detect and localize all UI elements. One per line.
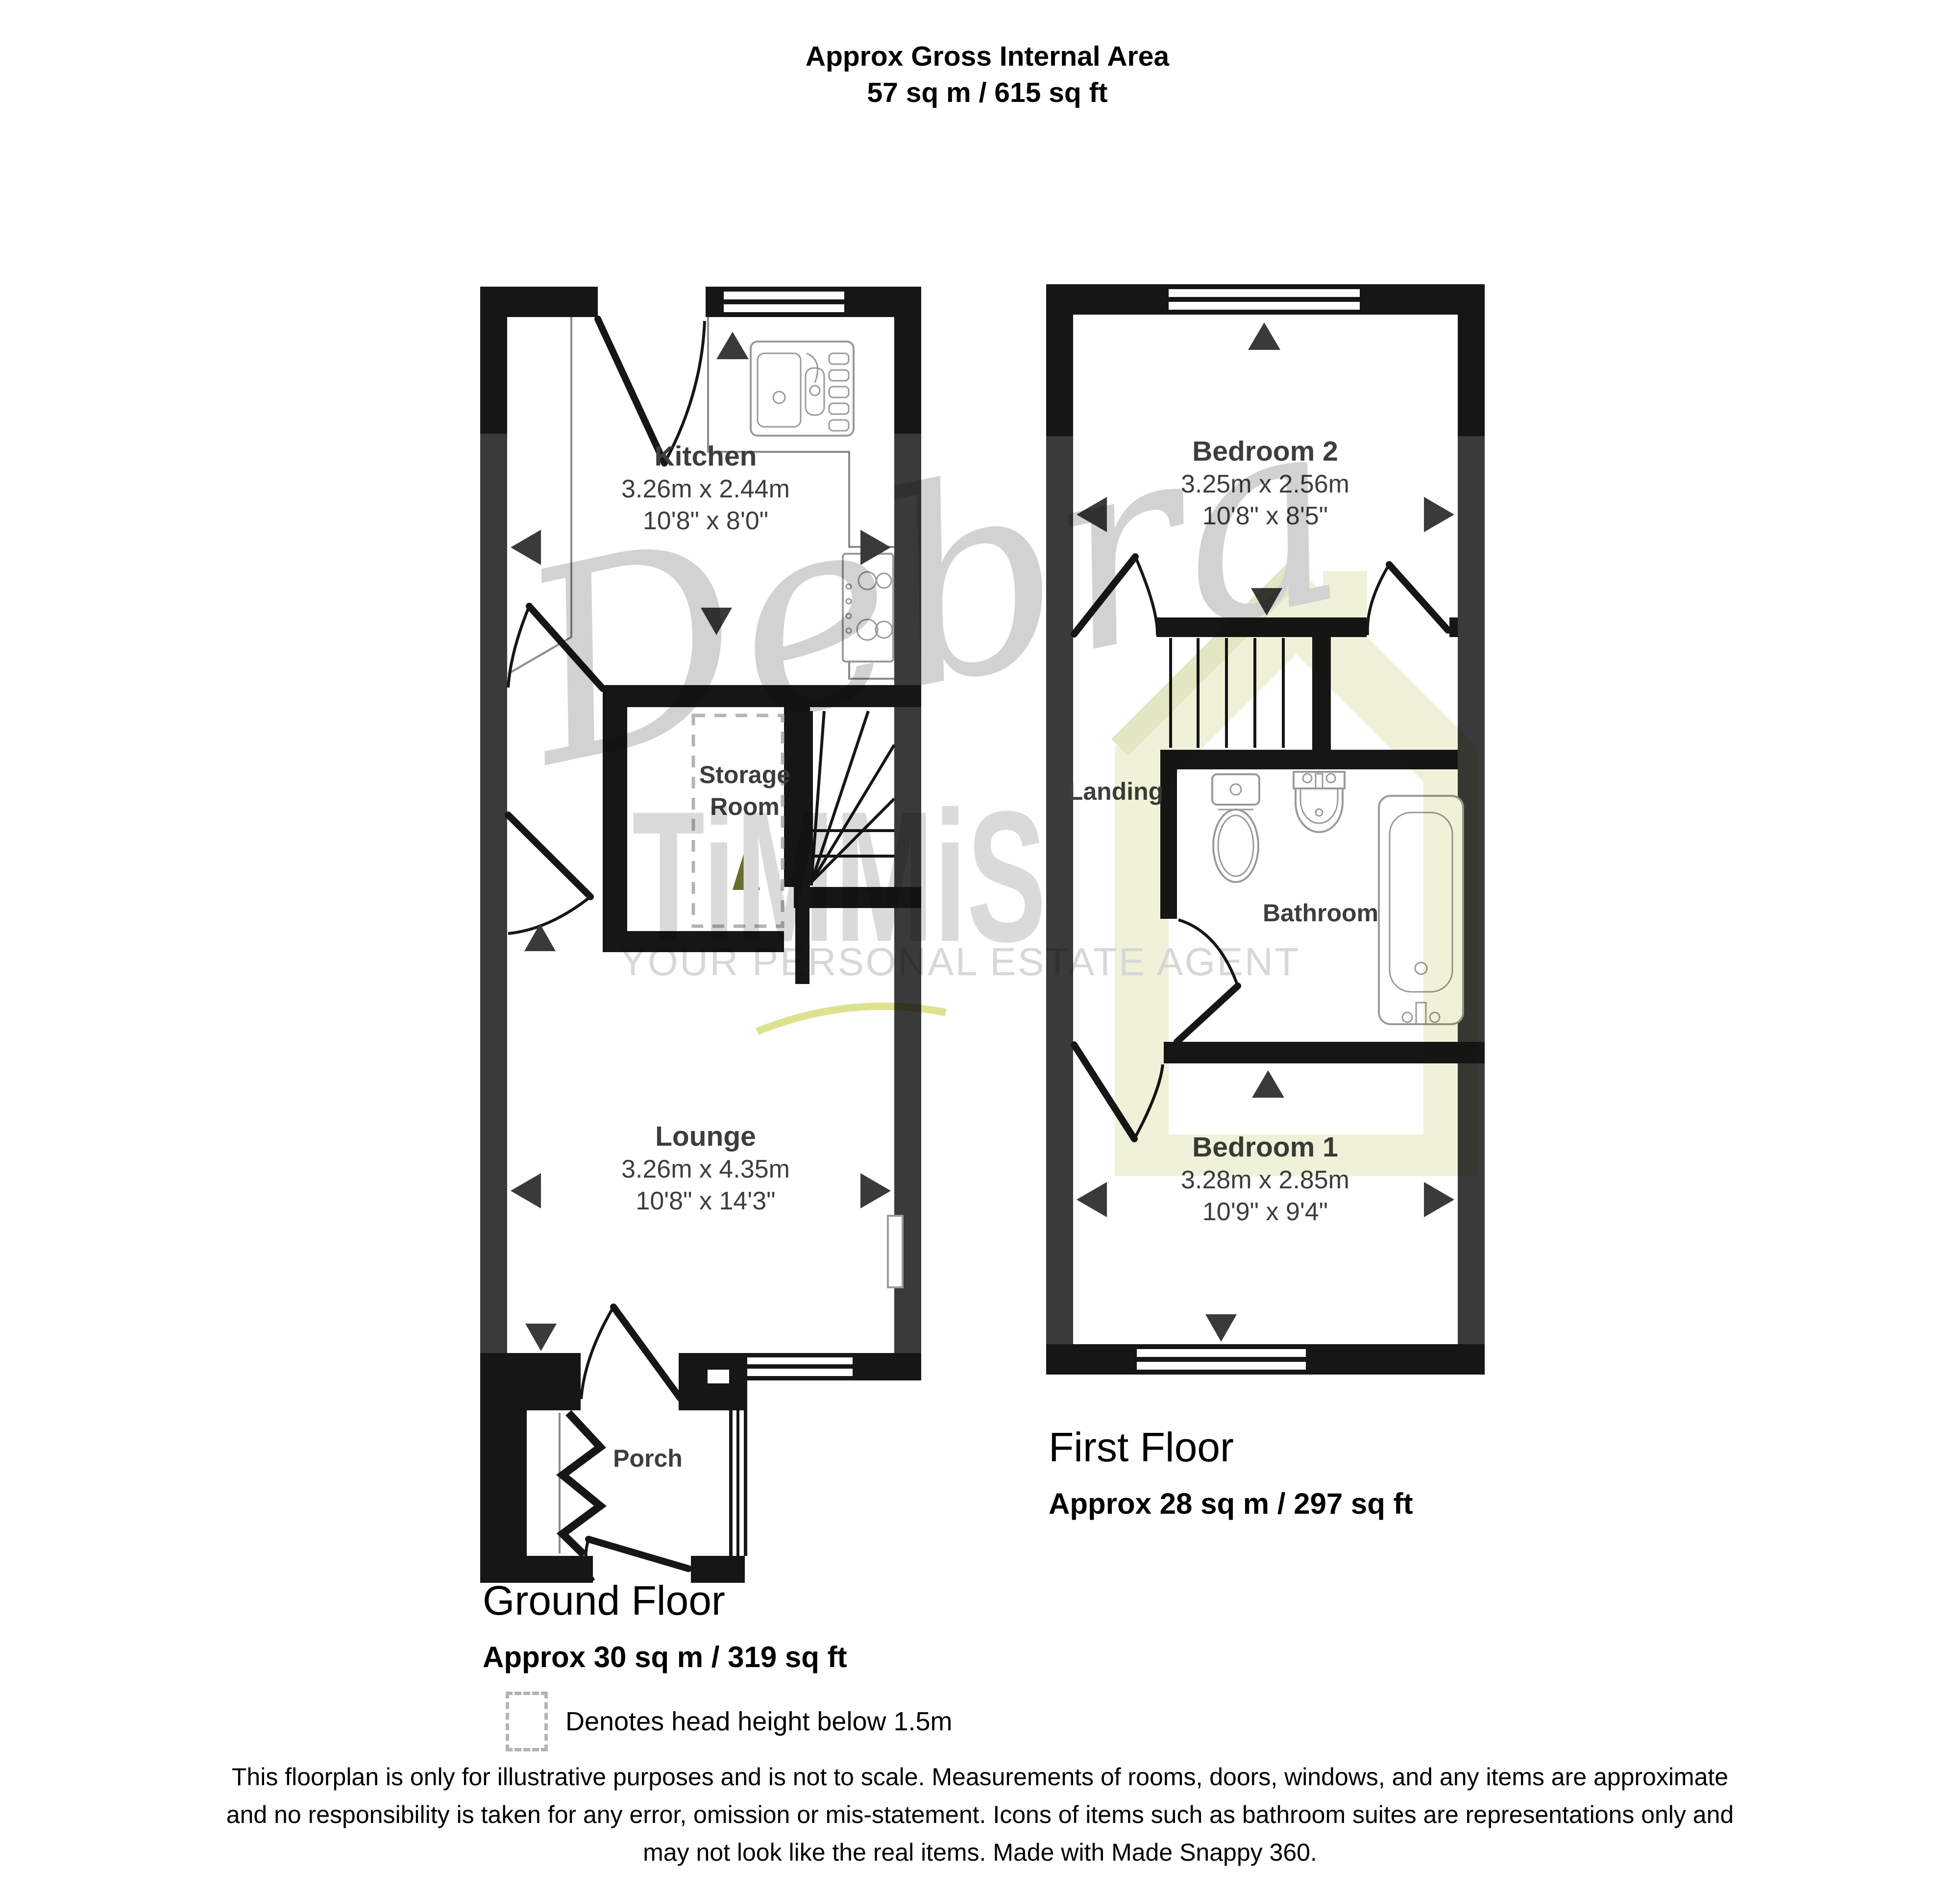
bedroom1-window: [1137, 1344, 1306, 1375]
porch-zigzag: [560, 1413, 600, 1555]
arrow-up-icon: [716, 332, 749, 359]
bathroom-door: [1177, 920, 1238, 1042]
arrow-down-icon: [1251, 588, 1282, 615]
watermark: Debra TiMMiS YOUR PERSONAL ESTATE AGENT: [0, 0, 1960, 1894]
arrow-down-icon: [525, 1324, 557, 1351]
wall: [894, 287, 921, 434]
kitchen-imperial: 10'8" x 8'0": [643, 507, 768, 535]
wall: [706, 287, 724, 317]
wall: [480, 1353, 581, 1410]
legend-text: Denotes head height below 1.5m: [565, 1706, 953, 1737]
title-line2: 57 sq m / 615 sq ft: [735, 74, 1240, 111]
bedroom2-door: [1074, 557, 1157, 635]
wall: [1046, 436, 1073, 1375]
kitchen-metric: 3.26m x 2.44m: [621, 475, 790, 503]
arrow-up-icon: [524, 924, 556, 951]
ground-floor-heading-block: Ground Floor Approx 30 sq m / 319 sq ft: [483, 1577, 847, 1674]
cupboard-door: [1368, 565, 1448, 635]
floorplan-page: Approx Gross Internal Area 57 sq m / 615…: [0, 0, 1960, 1894]
disclaimer-line2: and no responsibility is taken for any e…: [196, 1796, 1764, 1834]
storage-label-line1: Storage: [699, 761, 790, 788]
arrow-left-icon: [1077, 1182, 1107, 1217]
bathtub-icon: [1379, 796, 1463, 1024]
storage-label-line2: Room: [710, 793, 780, 820]
wall: [1160, 750, 1177, 919]
radiator-icon: [888, 1216, 903, 1287]
wall: [795, 908, 809, 984]
porch-inner-door: [581, 1307, 680, 1399]
porch-label: Porch: [613, 1445, 683, 1472]
basin-icon: [1294, 772, 1345, 832]
wall: [794, 887, 921, 908]
wall: [1046, 284, 1073, 436]
arrow-right-icon: [1424, 497, 1454, 532]
bedroom2-window: [1169, 284, 1360, 315]
arrow-left-icon: [511, 530, 541, 565]
landing-label: Landing: [1068, 778, 1163, 805]
ground-floor-plan: Kitchen 3.26m x 2.44m 10'8" x 8'0" Stora…: [480, 287, 921, 1583]
ground-floor-area: Approx 30 sq m / 319 sq ft: [483, 1640, 847, 1674]
bedroom1-imperial: 10'9" x 9'4": [1202, 1198, 1328, 1226]
first-floor-area: Approx 28 sq m / 297 sq ft: [1049, 1487, 1413, 1521]
first-floor-heading-block: First Floor Approx 28 sq m / 297 sq ft: [1049, 1424, 1413, 1521]
page-title: Approx Gross Internal Area 57 sq m / 615…: [735, 38, 1240, 111]
ground-stairs-icon: [811, 711, 894, 886]
bedroom1-metric: 3.28m x 2.85m: [1181, 1166, 1349, 1194]
wall: [480, 434, 507, 1410]
title-line1: Approx Gross Internal Area: [735, 38, 1240, 74]
wall: [1156, 617, 1367, 637]
wall: [1458, 284, 1485, 436]
bedroom1-label: Bedroom 1: [1192, 1131, 1338, 1163]
hob-icon: [843, 554, 893, 662]
arrow-right-icon: [1424, 1182, 1454, 1217]
lounge-door: [508, 815, 590, 934]
arrow-left-icon: [511, 1173, 541, 1208]
disclaimer-line3: may not look like the real items. Made w…: [196, 1834, 1764, 1871]
wall: [1312, 617, 1331, 769]
legend: Denotes head height below 1.5m: [506, 1692, 953, 1751]
arrow-up-icon: [1248, 322, 1280, 350]
sink-icon: [751, 342, 854, 436]
arrow-left-icon: [1077, 497, 1107, 532]
lounge-label: Lounge: [655, 1121, 756, 1152]
arrow-down-icon: [1205, 1314, 1237, 1342]
wall: [603, 707, 627, 952]
arrow-up-icon: [1252, 1070, 1284, 1098]
wall: [603, 931, 784, 952]
head-height-zone: [693, 715, 783, 926]
wall: [1164, 1042, 1485, 1063]
wall: [784, 707, 810, 887]
wall: [1160, 750, 1458, 769]
arrow-down-icon: [701, 608, 732, 635]
toilet-icon: [1212, 774, 1259, 882]
bedroom2-label: Bedroom 2: [1192, 436, 1338, 467]
porch-window: [729, 1380, 747, 1556]
lounge-metric: 3.26m x 4.35m: [621, 1155, 790, 1183]
kitchen-window: [724, 287, 844, 317]
ground-floor-heading: Ground Floor: [483, 1577, 847, 1624]
kitchen-label: Kitchen: [654, 441, 757, 472]
head-height-legend-icon: [506, 1692, 548, 1751]
lounge-imperial: 10'8" x 14'3": [636, 1187, 775, 1215]
bedroom2-imperial: 10'8" x 8'5": [1202, 502, 1328, 530]
arrow-right-icon: [860, 1173, 891, 1208]
wall: [1449, 617, 1458, 637]
wall: [603, 685, 921, 707]
wall: [480, 287, 507, 434]
bedroom1-door: [1074, 1045, 1163, 1139]
disclaimer-line1: This floorplan is only for illustrative …: [196, 1758, 1764, 1796]
porch-window-small: [708, 1370, 729, 1383]
bathroom-label: Bathroom: [1263, 899, 1378, 927]
first-floor-plan: Bedroom 2 3.25m x 2.56m 10'8" x 8'5": [1046, 284, 1485, 1375]
disclaimer: This floorplan is only for illustrative …: [196, 1758, 1764, 1871]
first-floor-stairs-icon: [1171, 638, 1283, 748]
bedroom2-metric: 3.25m x 2.56m: [1181, 470, 1349, 498]
lounge-window: [747, 1353, 853, 1380]
first-floor-heading: First Floor: [1049, 1424, 1413, 1471]
